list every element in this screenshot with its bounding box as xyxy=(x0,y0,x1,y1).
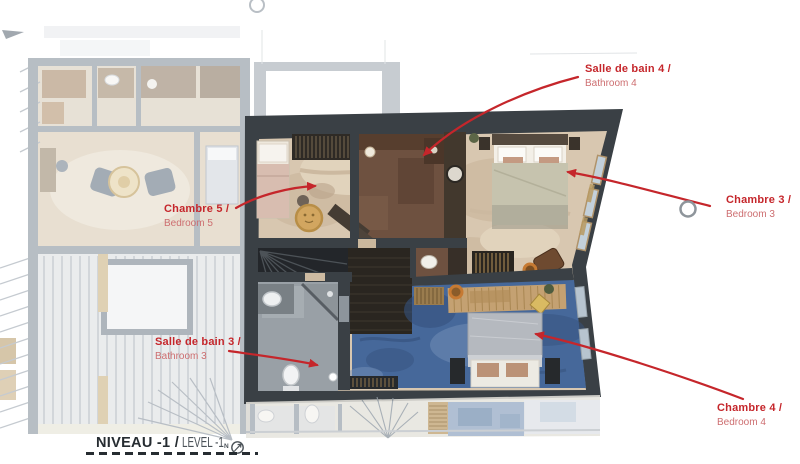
toilet xyxy=(421,256,437,269)
label-bathroom-4-en: Bathroom 4 xyxy=(585,77,671,90)
level-title-en: LEVEL -1 xyxy=(182,435,224,451)
north-label: N xyxy=(224,443,229,450)
label-bathroom-4: Salle de bain 4 / Bathroom 4 xyxy=(585,63,671,90)
main-plan xyxy=(244,109,623,404)
ghost-plan-bottom xyxy=(246,395,600,438)
label-bedroom-3-fr: Chambre 3 / xyxy=(726,194,791,207)
label-bedroom-3-en: Bedroom 3 xyxy=(726,208,791,221)
ghost-void-opening xyxy=(104,262,190,332)
toilet-2 xyxy=(283,365,299,385)
bathroom-3 xyxy=(258,272,352,391)
label-bathroom-3-fr: Salle de bain 3 / xyxy=(155,336,241,349)
wc-nook xyxy=(410,248,467,278)
floor-plan-page: Salle de bain 4 / Bathroom 4 Chambre 5 /… xyxy=(0,0,800,464)
label-bedroom-5-fr: Chambre 5 / xyxy=(164,203,229,216)
label-bedroom-4: Chambre 4 / Bedroom 4 xyxy=(717,402,782,429)
label-bedroom-5: Chambre 5 / Bedroom 5 xyxy=(164,203,229,230)
label-bathroom-3-en: Bathroom 3 xyxy=(155,350,241,363)
floor-plan-drawing xyxy=(0,0,800,464)
stool-ring-2 xyxy=(450,286,462,298)
ghost-corner-mark xyxy=(2,30,24,39)
pendant-light xyxy=(365,147,375,157)
reference-circle xyxy=(681,202,696,217)
label-bedroom-4-fr: Chambre 4 / xyxy=(717,402,782,415)
round-rug xyxy=(296,205,322,231)
label-bedroom-3: Chambre 3 / Bedroom 3 xyxy=(726,194,791,221)
ghost-column-circle xyxy=(250,0,264,12)
title-underline-dashes xyxy=(86,452,258,455)
bookshelf xyxy=(292,134,350,160)
level-title-fr: NIVEAU -1 / xyxy=(96,435,179,451)
plant-2 xyxy=(544,284,554,294)
label-bathroom-4-fr: Salle de bain 4 / xyxy=(585,63,671,76)
sink xyxy=(263,292,281,306)
label-bathroom-3: Salle de bain 3 / Bathroom 3 xyxy=(155,336,241,363)
plant xyxy=(469,133,479,143)
ghost-plan-left xyxy=(0,26,250,440)
vanity-wall xyxy=(444,132,466,248)
label-bedroom-5-en: Bedroom 5 xyxy=(164,217,229,230)
label-bedroom-4-en: Bedroom 4 xyxy=(717,416,782,429)
mirror xyxy=(447,166,463,182)
bed-3 xyxy=(492,134,568,229)
